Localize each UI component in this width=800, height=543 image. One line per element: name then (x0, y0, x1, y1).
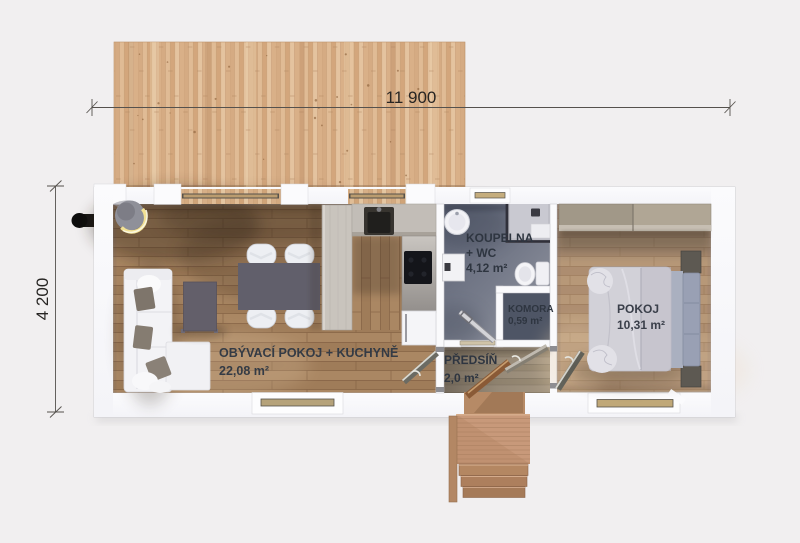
svg-text:2,0 m²: 2,0 m² (444, 371, 479, 385)
svg-text:+ WC: + WC (466, 246, 497, 260)
svg-text:OBÝVACÍ POKOJ + KUCHYNĚ: OBÝVACÍ POKOJ + KUCHYNĚ (219, 345, 398, 360)
svg-text:22,08 m²: 22,08 m² (219, 364, 269, 378)
svg-text:4,12 m²: 4,12 m² (466, 261, 507, 275)
svg-text:11 900: 11 900 (386, 88, 437, 107)
svg-text:POKOJ: POKOJ (617, 302, 659, 316)
svg-text:0,59 m²: 0,59 m² (508, 316, 543, 327)
svg-text:10,31 m²: 10,31 m² (617, 318, 665, 332)
svg-text:4 200: 4 200 (33, 278, 52, 321)
svg-text:KOMORA: KOMORA (508, 304, 554, 315)
svg-text:PŘEDSÍŇ: PŘEDSÍŇ (444, 352, 497, 367)
svg-text:KOUPELNA: KOUPELNA (466, 231, 534, 245)
